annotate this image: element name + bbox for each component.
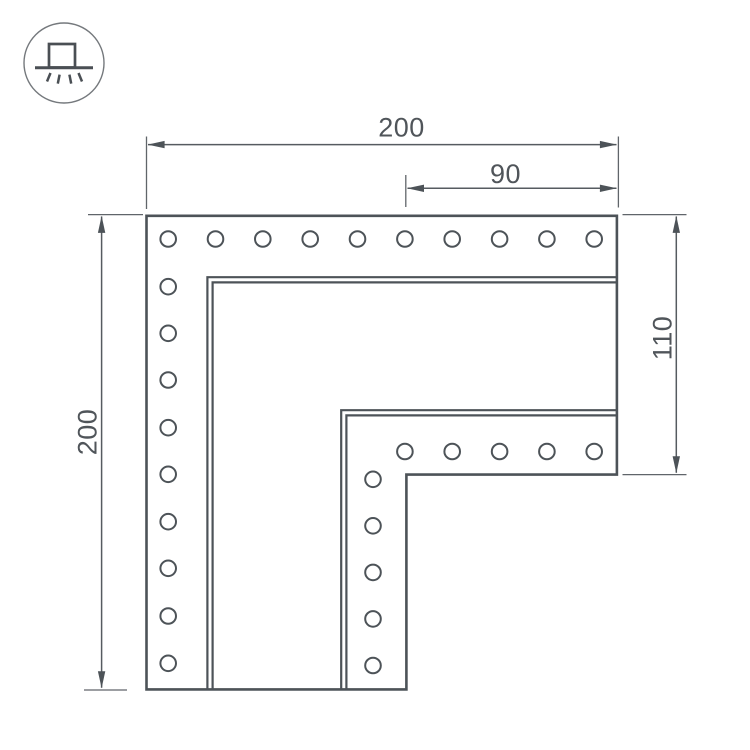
arrow-left-icon — [407, 185, 424, 192]
arrow-down-icon — [98, 671, 105, 688]
icon-circle-border — [24, 23, 104, 103]
screw-hole — [365, 658, 381, 674]
screw-hole — [160, 608, 176, 624]
screw-hole — [586, 231, 602, 247]
dimension-value: 90 — [490, 159, 521, 189]
screw-hole — [492, 444, 508, 460]
arrow-left-icon — [148, 141, 165, 148]
light-ray-icon — [79, 73, 83, 82]
screw-hole — [444, 231, 460, 247]
screw-hole — [160, 561, 176, 577]
arrow-up-icon — [98, 216, 105, 233]
screw-hole — [350, 231, 366, 247]
screw-hole — [160, 279, 176, 295]
screw-hole — [586, 444, 602, 460]
luminaire-box-icon — [49, 44, 75, 68]
dimension-right-arm-offset: 90 — [407, 159, 617, 192]
surface-mounted-light-icon — [24, 23, 104, 103]
arrow-up-icon — [673, 216, 680, 233]
screw-hole — [160, 231, 176, 247]
dimension-overall-height: 200 — [73, 216, 106, 688]
arrow-right-icon — [600, 185, 617, 192]
drawing-page: 200 90 200 110 — [0, 0, 750, 750]
light-ray-icon — [69, 75, 71, 84]
dimension-value: 200 — [73, 409, 103, 456]
screw-hole — [492, 231, 508, 247]
screw-hole — [365, 472, 381, 488]
screw-hole — [160, 326, 176, 342]
screw-hole — [539, 231, 555, 247]
screw-hole — [539, 444, 555, 460]
corner-plate — [147, 216, 617, 690]
screw-hole — [444, 444, 460, 460]
screw-hole — [160, 514, 176, 530]
screw-hole — [365, 518, 381, 534]
dimension-right-arm-height: 110 — [648, 216, 681, 473]
arrow-right-icon — [600, 141, 617, 148]
screw-hole — [160, 420, 176, 436]
light-ray-icon — [47, 73, 51, 82]
screw-hole — [302, 231, 318, 247]
screw-hole — [365, 611, 381, 627]
screw-hole — [397, 444, 413, 460]
technical-drawing: 200 90 200 110 — [0, 0, 750, 750]
screw-hole — [397, 231, 413, 247]
screw-hole — [160, 656, 176, 672]
screw-hole — [255, 231, 271, 247]
screw-hole — [365, 565, 381, 581]
dimension-value: 110 — [648, 316, 678, 361]
light-ray-icon — [58, 75, 60, 84]
screw-hole — [160, 372, 176, 388]
screw-hole — [160, 467, 176, 483]
arrow-down-icon — [673, 456, 680, 473]
dimension-value: 200 — [378, 113, 425, 143]
dimension-overall-width: 200 — [148, 113, 617, 149]
screw-hole — [208, 231, 224, 247]
